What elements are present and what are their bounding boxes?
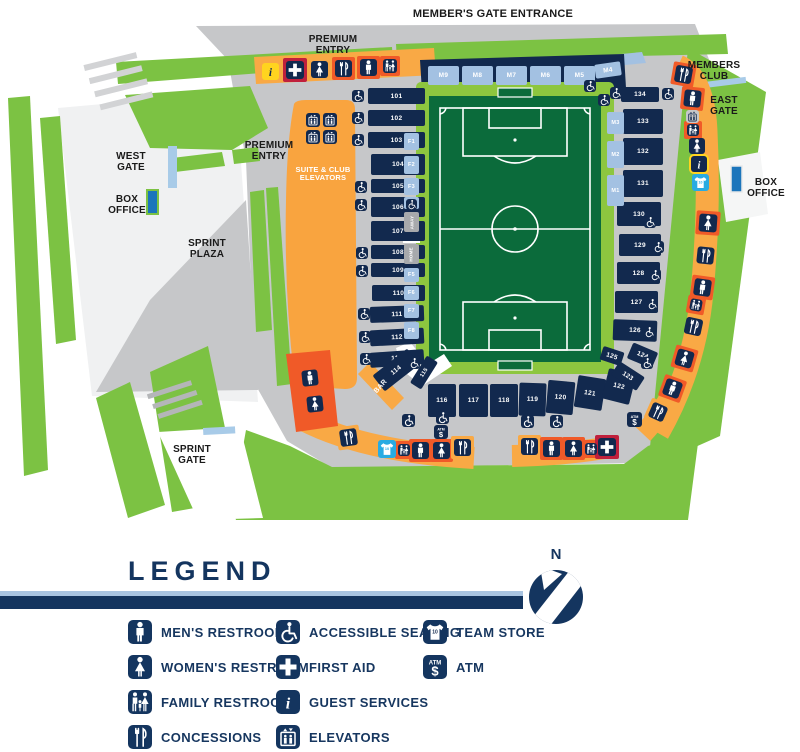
svg-text:$: $	[632, 418, 637, 427]
family-icon	[585, 443, 597, 455]
womens-icon	[689, 138, 705, 154]
acc-icon	[436, 411, 449, 424]
acc-icon	[406, 199, 417, 210]
acc-icon	[521, 415, 534, 428]
legend-item-atm: ATM$ATM	[423, 655, 484, 679]
conc-icon	[696, 246, 715, 265]
womens-icon	[306, 395, 324, 413]
legend-label: TEAM STORE	[456, 625, 545, 640]
acc-icon	[662, 88, 674, 100]
acc-icon	[649, 269, 661, 281]
acc-icon	[402, 414, 415, 427]
mens-icon	[412, 442, 429, 459]
mens-icon	[301, 369, 319, 387]
legend-label: CONCESSIONS	[161, 730, 261, 745]
legend-item-mens: MEN'S RESTROOM	[128, 620, 286, 644]
legend-label: GUEST SERVICES	[309, 695, 429, 710]
acc-icon	[598, 94, 610, 106]
aid-icon	[276, 655, 300, 679]
store-icon: 10	[692, 174, 709, 191]
family-icon	[689, 298, 703, 312]
legend-label: ATM	[456, 660, 484, 675]
acc-icon	[352, 134, 364, 146]
family-icon	[687, 124, 699, 136]
store-icon: 10	[423, 620, 447, 644]
elev-icon	[276, 725, 300, 749]
acc-icon	[352, 112, 364, 124]
legend-bar	[0, 596, 523, 609]
conc-icon	[339, 428, 358, 447]
svg-text:10: 10	[699, 181, 703, 185]
acc-icon	[276, 620, 300, 644]
conc-icon	[128, 725, 152, 749]
acc-icon	[355, 181, 367, 193]
legend-title: LEGEND	[128, 556, 277, 587]
svg-text:i: i	[698, 160, 701, 171]
svg-text:i: i	[269, 67, 273, 79]
atm-icon: ATM$	[434, 425, 448, 439]
elev-icon	[306, 130, 320, 144]
womens-icon	[311, 61, 328, 78]
info-icon: i	[262, 63, 279, 80]
acc-icon	[610, 87, 622, 99]
elev-icon	[323, 130, 337, 144]
acc-icon	[646, 298, 658, 310]
icons-layer: ii10ATM$ATM$10	[0, 0, 800, 545]
legend-item-family: FAMILY RESTROOM	[128, 690, 292, 714]
legend-item-info: iGUEST SERVICES	[276, 690, 429, 714]
elev-icon	[323, 113, 337, 127]
acc-icon	[355, 199, 367, 211]
elev-icon	[306, 113, 320, 127]
store-icon: 10	[378, 440, 396, 458]
conc-icon	[521, 438, 538, 455]
acc-icon	[550, 415, 563, 428]
acc-icon	[584, 80, 596, 92]
conc-icon	[683, 316, 703, 336]
legend-label: FIRST AID	[309, 660, 376, 675]
conc-icon	[674, 65, 694, 85]
womens-icon	[698, 213, 717, 232]
acc-icon	[643, 326, 655, 338]
mens-icon	[360, 59, 377, 76]
legend-label: MEN'S RESTROOM	[161, 625, 286, 640]
acc-icon	[352, 90, 364, 102]
acc-icon	[644, 216, 656, 228]
mens-icon	[543, 440, 560, 457]
legend-item-store: 10TEAM STORE	[423, 620, 545, 644]
legend-item-elev: ELEVATORS	[276, 725, 390, 749]
svg-text:i: i	[286, 696, 291, 713]
acc-icon	[408, 357, 420, 369]
atm-icon: ATM$	[423, 655, 447, 679]
family-icon	[128, 690, 152, 714]
mens-icon	[683, 89, 702, 108]
conc-icon	[335, 60, 352, 77]
stadium-map: 1011021031041051061071081091101111121131…	[0, 0, 800, 545]
acc-icon	[641, 357, 653, 369]
acc-icon	[359, 331, 371, 343]
svg-text:10: 10	[432, 630, 438, 636]
acc-icon	[356, 247, 368, 259]
womens-icon	[128, 655, 152, 679]
legend-label: ELEVATORS	[309, 730, 390, 745]
family-icon	[398, 444, 410, 456]
svg-text:10: 10	[385, 447, 389, 451]
compass-north-label: N	[520, 546, 592, 563]
legend-label: FAMILY RESTROOM	[161, 695, 292, 710]
legend-item-conc: CONCESSIONS	[128, 725, 261, 749]
info-icon: i	[276, 690, 300, 714]
info-icon: i	[691, 156, 707, 172]
mens-icon	[693, 278, 712, 297]
family-icon	[383, 59, 397, 73]
mens-icon	[128, 620, 152, 644]
womens-icon	[433, 442, 450, 459]
atm-icon: ATM$	[627, 412, 642, 427]
legend-item-aid: FIRST AID	[276, 655, 376, 679]
conc-icon	[454, 439, 471, 456]
aid-icon	[286, 61, 304, 79]
acc-icon	[356, 265, 368, 277]
svg-text:$: $	[431, 664, 439, 679]
womens-icon	[565, 440, 582, 457]
acc-icon	[358, 308, 370, 320]
acc-icon	[652, 241, 664, 253]
elev-icon	[686, 110, 699, 123]
aid-icon	[598, 438, 616, 456]
acc-icon	[360, 353, 372, 365]
